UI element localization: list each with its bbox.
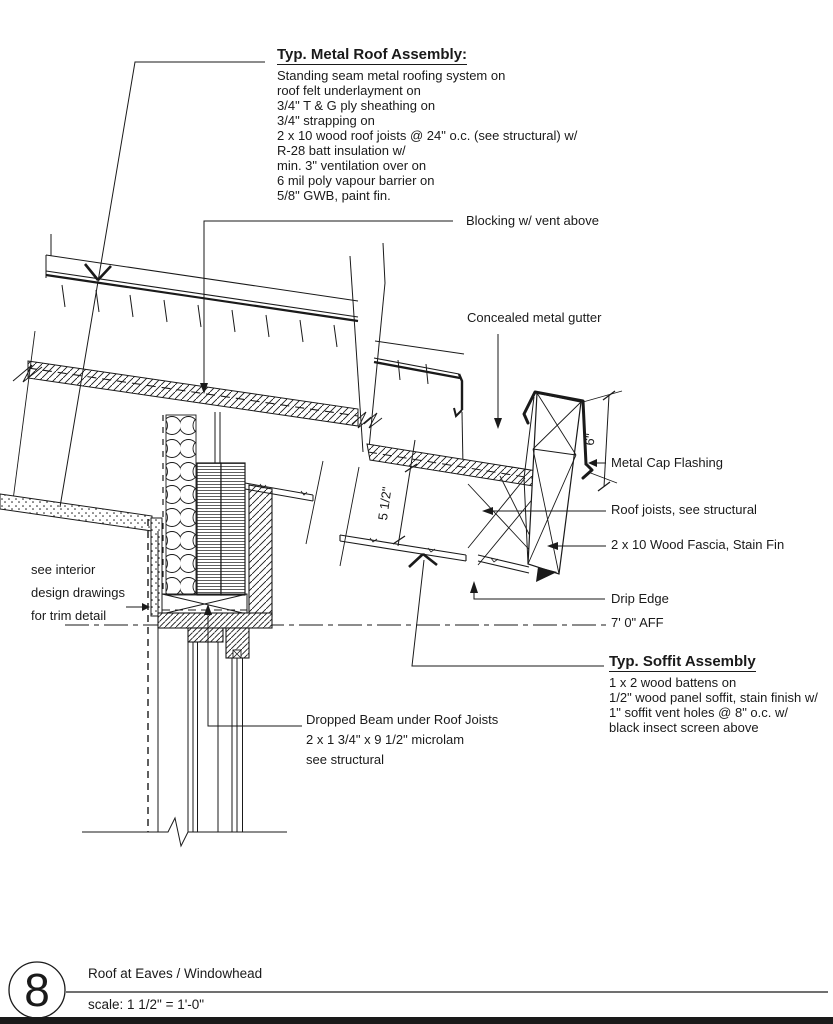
note-line: min. 3" ventilation over on [277, 158, 577, 173]
note-line: black insect screen above [609, 720, 818, 735]
soffit-assembly-title: Typ. Soffit Assembly [609, 653, 756, 672]
detail-number: 8 [9, 961, 65, 1019]
gutter-label: Concealed metal gutter [467, 311, 601, 325]
note-line: for trim detail [31, 604, 125, 627]
aff-label: 7' 0" AFF [611, 616, 664, 630]
interior-trim-note: see interior design drawings for trim de… [31, 558, 125, 627]
cap-flashing-label: Metal Cap Flashing [611, 456, 723, 470]
roof-assembly-note: Typ. Metal Roof Assembly: Standing seam … [277, 46, 577, 203]
note-line: Dropped Beam under Roof Joists [306, 710, 498, 730]
note-line: see structural [306, 750, 498, 770]
drip-edge-label: Drip Edge [611, 592, 669, 606]
note-line: 6 mil poly vapour barrier on [277, 173, 577, 188]
roof-assembly-title: Typ. Metal Roof Assembly: [277, 46, 467, 65]
note-line: 3/4" strapping on [277, 113, 577, 128]
detail-scale: scale: 1 1/2" = 1'-0" [88, 997, 204, 1012]
note-line: 2 x 10 wood roof joists @ 24" o.c. (see … [277, 128, 577, 143]
note-line: 5/8" GWB, paint fin. [277, 188, 577, 203]
fascia-label: 2 x 10 Wood Fascia, Stain Fin [611, 538, 784, 552]
note-line: 1/2" wood panel soffit, stain finish w/ [609, 690, 818, 705]
note-line: roof felt underlayment on [277, 83, 577, 98]
note-line: design drawings [31, 581, 125, 604]
fascia-section [524, 392, 592, 582]
detail-title: Roof at Eaves / Windowhead [88, 966, 262, 981]
fascia-height-dimension: 6" [582, 433, 599, 447]
note-line: 3/4" T & G ply sheathing on [277, 98, 577, 113]
roof-joists-label: Roof joists, see structural [611, 503, 757, 517]
note-line: 1 x 2 wood battens on [609, 675, 818, 690]
soffit-assembly-note: Typ. Soffit Assembly 1 x 2 wood battens … [609, 653, 818, 735]
detail-sheet: Typ. Metal Roof Assembly: Standing seam … [0, 0, 833, 1024]
gutter-section [364, 243, 546, 573]
note-line: 1" soffit vent holes @ 8" o.c. w/ [609, 705, 818, 720]
sheet-edge-bar [0, 1017, 833, 1024]
note-line: see interior [31, 558, 125, 581]
note-line: Standing seam metal roofing system on [277, 68, 577, 83]
blocking-label: Blocking w/ vent above [466, 214, 599, 228]
dropped-beam-note: Dropped Beam under Roof Joists 2 x 1 3/4… [306, 710, 498, 770]
note-line: 2 x 1 3/4" x 9 1/2" microlam [306, 730, 498, 750]
note-line: R-28 batt insulation w/ [277, 143, 577, 158]
